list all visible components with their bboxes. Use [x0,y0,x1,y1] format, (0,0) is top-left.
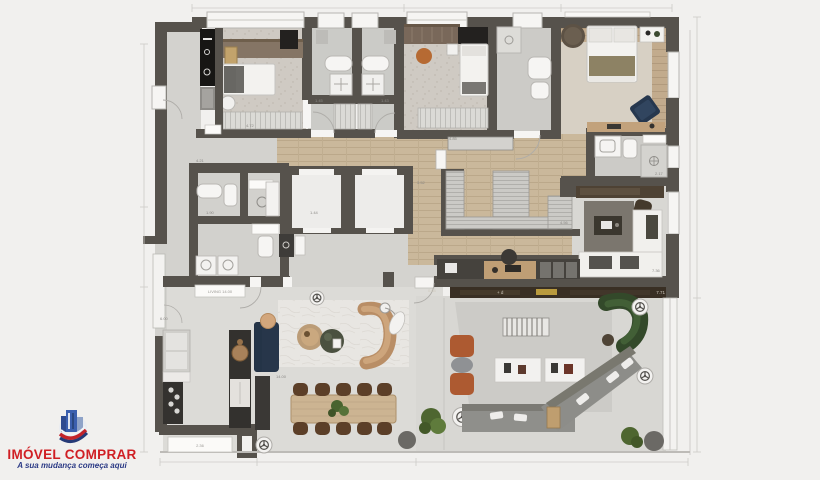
svg-text:IMÓVEL COMPRAR: IMÓVEL COMPRAR [7,447,136,462]
svg-text:1.43: 1.43 [381,98,390,103]
svg-text:A sua mudança começa aqui: A sua mudança começa aqui [16,461,127,470]
svg-text:0.68: 0.68 [428,288,437,293]
svg-text:1.44: 1.44 [310,210,319,215]
svg-text:7.71: 7.71 [656,290,665,295]
svg-text:4.56: 4.56 [560,220,569,225]
svg-text:2.36: 2.36 [196,443,205,448]
svg-text:6.00: 6.00 [160,316,169,321]
svg-text:3.52: 3.52 [417,180,426,185]
svg-text:4.72: 4.72 [246,123,255,128]
svg-text:1.45: 1.45 [315,98,324,103]
svg-text:LIVING 14.00: LIVING 14.00 [208,289,233,294]
svg-text:2.17: 2.17 [655,171,664,176]
svg-text:4.85: 4.85 [449,136,458,141]
svg-text:4.21: 4.21 [196,158,205,163]
svg-text:+ d: + d [497,290,504,295]
svg-text:14.00: 14.00 [276,374,287,379]
svg-text:7.36: 7.36 [652,268,661,273]
svg-text:1.90: 1.90 [206,210,215,215]
